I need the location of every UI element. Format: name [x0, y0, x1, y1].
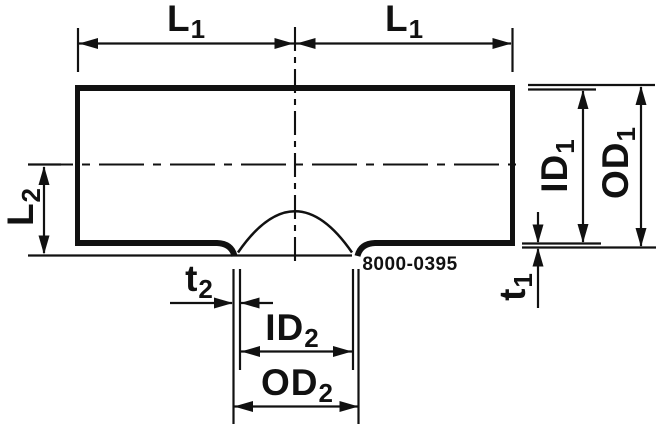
label-sub: 2 — [16, 188, 46, 202]
dim-l2: L2 — [0, 165, 61, 255]
arrowhead — [79, 38, 98, 49]
label-base: t — [492, 288, 533, 301]
arrowhead — [241, 346, 260, 357]
arrowhead — [578, 90, 589, 109]
arrowhead — [340, 401, 359, 412]
label-base: L — [385, 0, 409, 39]
arrowhead — [636, 86, 647, 105]
arrowhead — [39, 236, 50, 255]
label-t1: t1 — [492, 273, 538, 301]
arrowhead — [333, 346, 352, 357]
label-l1-right: L1 — [385, 0, 423, 44]
label-sub: 2 — [304, 323, 318, 353]
label-id1: ID1 — [534, 139, 580, 192]
label-sub: 1 — [508, 273, 538, 287]
dim-t1: t1 — [492, 212, 544, 308]
arrowhead — [533, 225, 544, 244]
drawing-canvas: L1 L1 L2 t2 ID2 OD2 ID1 — [0, 0, 659, 425]
label-od2: OD2 — [261, 362, 333, 408]
arrowhead — [493, 38, 512, 49]
dim-od2: OD2 — [234, 362, 359, 412]
label-t2: t2 — [185, 258, 213, 304]
label-base: L — [167, 0, 191, 39]
arrowhead — [214, 298, 233, 309]
label-sub: 1 — [191, 14, 205, 44]
part-number: 8000-0395 — [362, 254, 457, 275]
arrowhead — [234, 401, 253, 412]
body-bottom-wall-left — [75, 243, 235, 256]
arrowhead — [297, 38, 316, 49]
dim-id2: ID2 — [241, 307, 352, 357]
label-base: ID — [534, 154, 575, 193]
label-l2: L2 — [0, 188, 46, 226]
label-base: t — [185, 258, 198, 299]
label-sub: 2 — [319, 378, 333, 408]
label-base: ID — [265, 307, 304, 348]
arrowhead — [533, 248, 544, 267]
label-base: L — [0, 202, 41, 226]
label-id2: ID2 — [265, 307, 318, 353]
label-sub: 2 — [198, 274, 212, 304]
arrowhead — [39, 166, 50, 185]
label-base: OD — [595, 141, 636, 199]
arrowhead — [636, 228, 647, 247]
arrowhead — [578, 224, 589, 243]
label-sub: 1 — [550, 139, 580, 153]
dim-id1: ID1 — [522, 90, 601, 244]
label-base: OD — [261, 362, 319, 403]
arrowhead — [275, 38, 294, 49]
dim-t2: t2 — [170, 258, 273, 309]
tee-technical-drawing: L1 L1 L2 t2 ID2 OD2 ID1 — [0, 0, 659, 425]
arrowhead — [241, 298, 260, 309]
label-sub: 1 — [409, 14, 423, 44]
label-od1: OD1 — [595, 127, 641, 199]
label-sub: 1 — [611, 127, 641, 141]
label-l1-left: L1 — [167, 0, 205, 44]
